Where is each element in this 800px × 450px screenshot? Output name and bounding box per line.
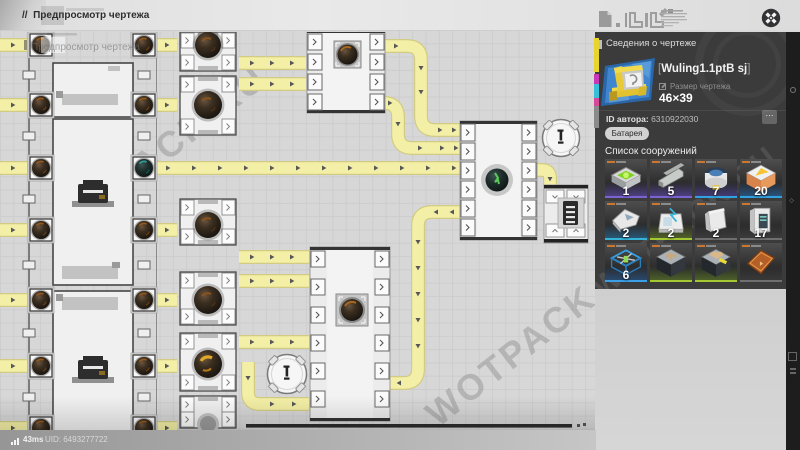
svg-text:Предпросмотр чертежа: Предпросмотр чертежа bbox=[31, 42, 140, 53]
